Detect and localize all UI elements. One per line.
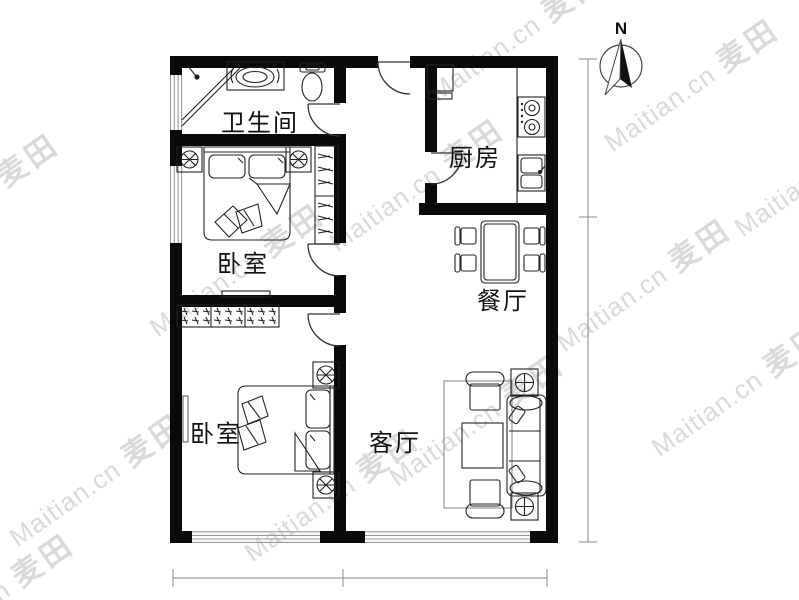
north-label: N bbox=[615, 19, 627, 38]
dimension-line-bottom bbox=[173, 569, 547, 587]
window-bedroom-bottom-wall bbox=[192, 532, 320, 543]
dining-chair bbox=[455, 254, 476, 272]
room-label-kitchen: 厨房 bbox=[449, 145, 501, 172]
room-labels: 卫生间 厨房 卧室 餐厅 卧室 客厅 bbox=[190, 110, 529, 457]
room-label-bathroom: 卫生间 bbox=[221, 110, 299, 137]
room-label-living: 客厅 bbox=[369, 430, 421, 457]
room-label-bedroom-top: 卧室 bbox=[217, 251, 269, 278]
bathroom-door bbox=[308, 104, 340, 136]
kitchen-fixtures bbox=[427, 65, 545, 203]
dining-chair bbox=[524, 254, 545, 272]
double-bed bbox=[204, 147, 290, 240]
dining-table bbox=[481, 221, 519, 283]
toilet-icon bbox=[300, 63, 325, 101]
coffee-table bbox=[462, 423, 503, 468]
bedroom-bottom-door bbox=[308, 314, 340, 346]
dining-furniture bbox=[455, 221, 545, 283]
shower-head-icon bbox=[194, 74, 199, 79]
wardrobe-hangers bbox=[177, 305, 279, 327]
floor-plan-canvas: Maitian.cn麦田Maitian.cn麦田Maitian.cn麦田Mait… bbox=[0, 0, 799, 600]
armchair-top bbox=[466, 372, 504, 410]
room-label-dining: 餐厅 bbox=[477, 288, 529, 315]
side-table-lamp-bottom bbox=[511, 493, 538, 520]
room-label-bedroom-bottom: 卧室 bbox=[190, 421, 242, 448]
rug-outline bbox=[444, 381, 512, 508]
bedroom-top-door bbox=[308, 244, 340, 276]
window-bedroom-top-left bbox=[171, 166, 182, 243]
living-furniture bbox=[444, 369, 546, 520]
armchair-bottom bbox=[466, 480, 504, 518]
floor-plan-drawing: N 卫生间 厨房 卧室 餐厅 卧室 客厅 bbox=[0, 0, 799, 600]
dining-chair bbox=[524, 227, 545, 245]
radiator bbox=[183, 396, 188, 442]
double-bed bbox=[238, 386, 334, 474]
sofa bbox=[507, 395, 546, 496]
window-living-bottom-wall bbox=[365, 532, 530, 543]
entry-door bbox=[378, 62, 410, 94]
side-table-lamp-top bbox=[511, 369, 538, 396]
north-arrow-icon: N bbox=[600, 19, 642, 95]
stove-icon bbox=[518, 97, 545, 137]
kitchen-sink-icon bbox=[518, 155, 545, 191]
dining-chair bbox=[455, 227, 476, 245]
dimension-line-right bbox=[579, 59, 597, 542]
window-bathroom-left bbox=[171, 75, 182, 130]
